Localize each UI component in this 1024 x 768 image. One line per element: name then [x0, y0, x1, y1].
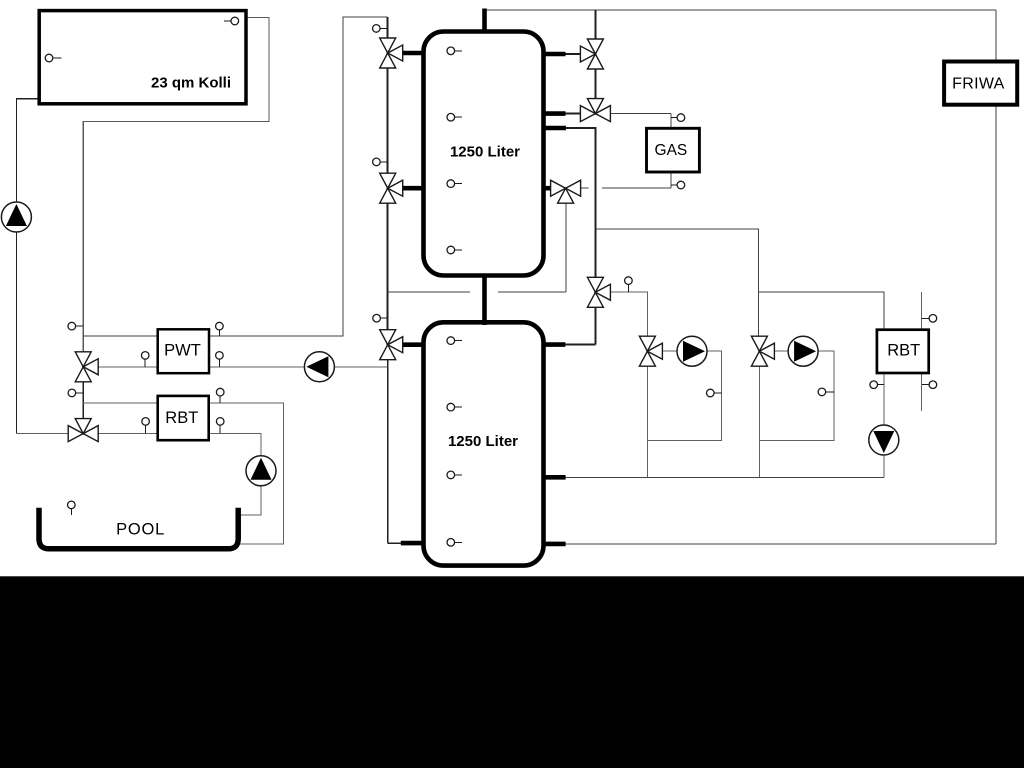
svg-text:GAS: GAS [655, 142, 688, 159]
svg-text:PWT: PWT [164, 342, 201, 360]
svg-text:23 qm Kolli: 23 qm Kolli [151, 74, 231, 91]
svg-text:1250 Liter: 1250 Liter [448, 433, 518, 450]
svg-text:RBT: RBT [887, 342, 920, 360]
svg-text:RBT: RBT [165, 409, 198, 427]
svg-text:1250 Liter: 1250 Liter [450, 144, 520, 161]
svg-text:POOL: POOL [116, 521, 165, 539]
svg-text:FRIWA: FRIWA [952, 76, 1004, 93]
